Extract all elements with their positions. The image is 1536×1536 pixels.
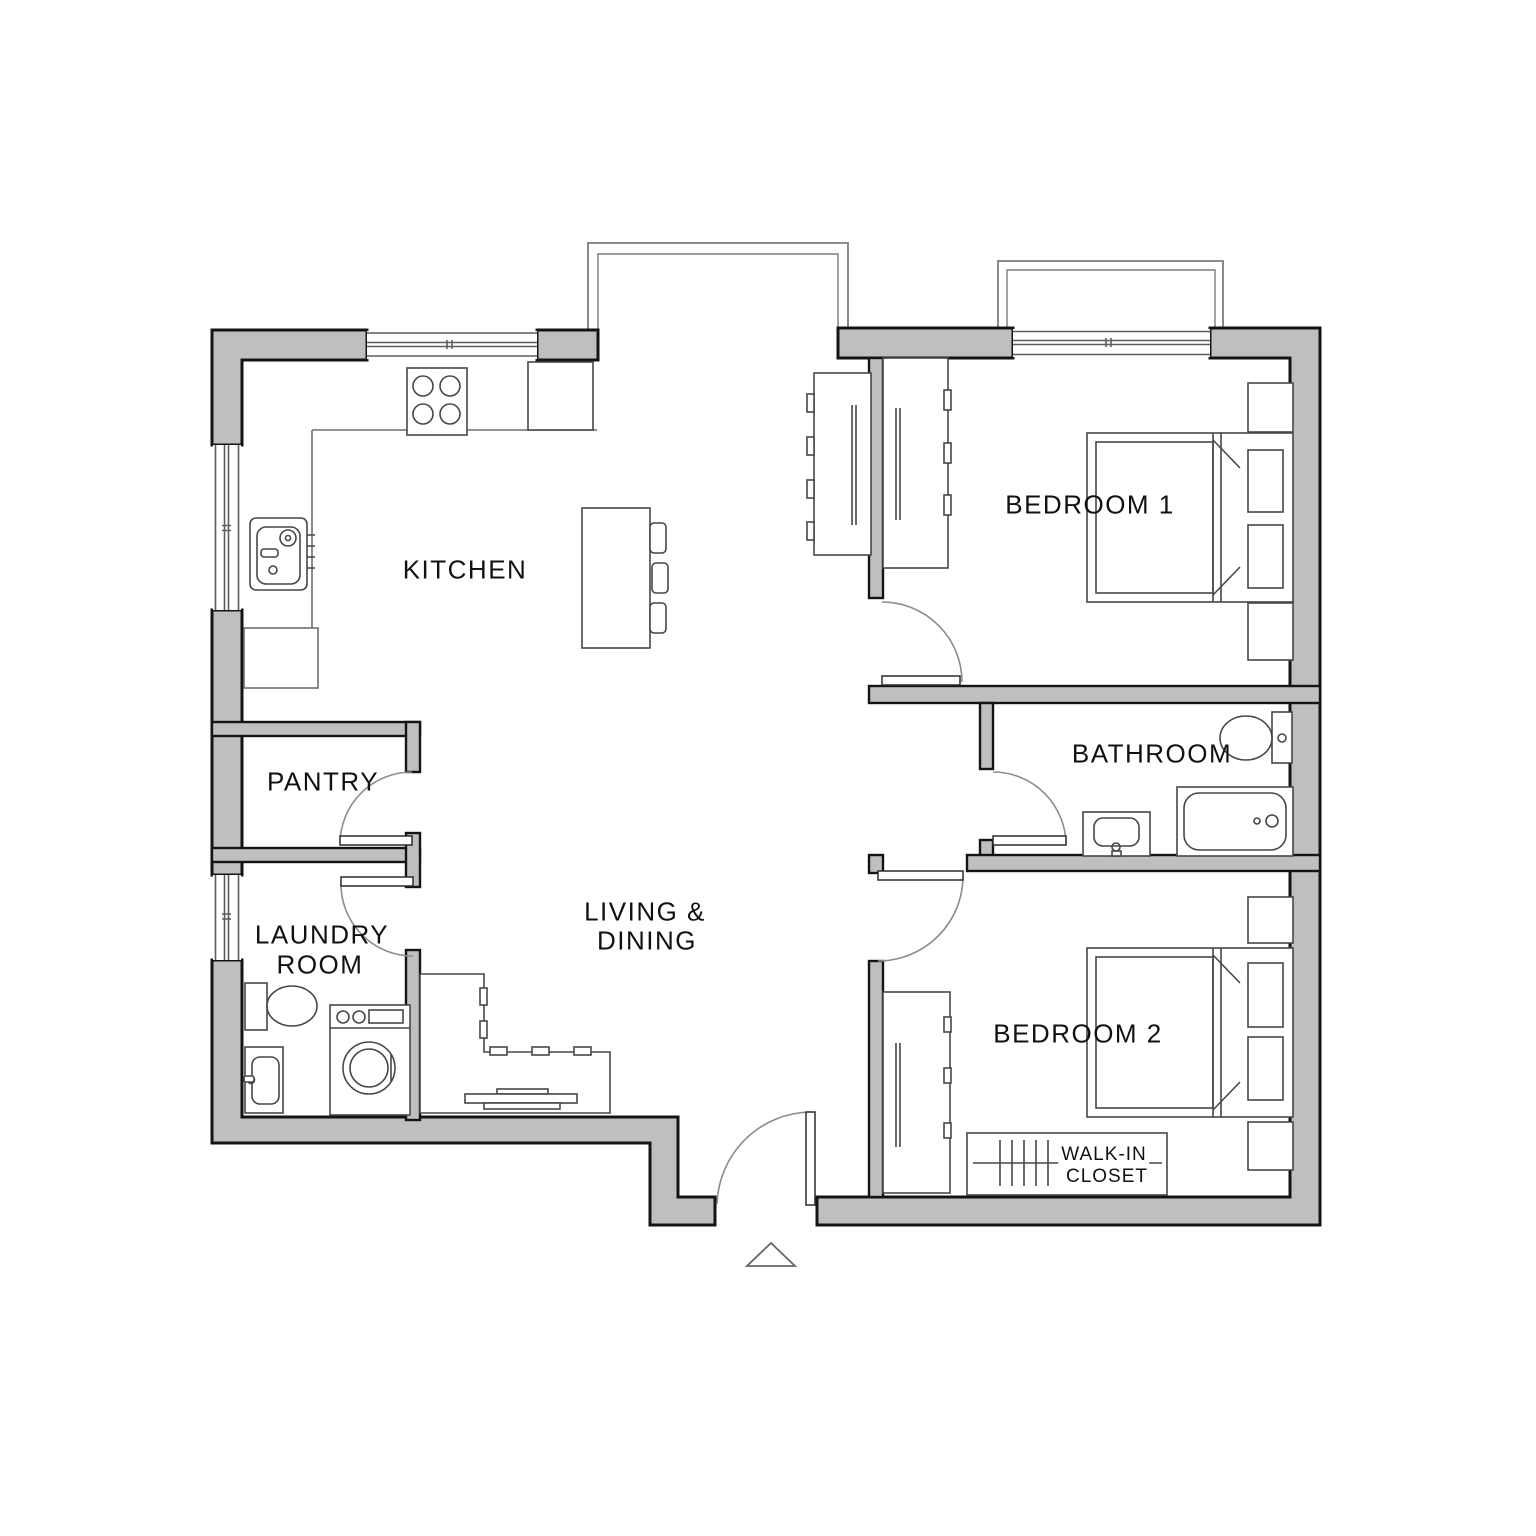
stool-icon [650, 523, 666, 553]
pillow-icon [1248, 1037, 1283, 1100]
door-swing-icon [882, 602, 962, 682]
window-laundry-left [213, 875, 241, 960]
wall-bedroom1-bathroom [869, 686, 1320, 703]
nightstand-icon [1248, 897, 1293, 943]
entry-triangle-icon [747, 1243, 795, 1266]
stool-icon [652, 563, 668, 593]
stool-icon [650, 603, 666, 633]
wall-bathroom-left-lower [980, 840, 993, 856]
wall-bathroom-left-upper [980, 703, 993, 769]
bathroom-door [993, 772, 1066, 845]
wardrobe-icon [807, 373, 871, 555]
wall-left-middle [212, 610, 242, 875]
floor-plan-drawing [0, 0, 1536, 1536]
door-swing-icon [341, 884, 413, 956]
walk-in-closet-area [967, 1133, 1167, 1195]
cabinet-icon [244, 628, 318, 688]
wall-bathroom-bedroom2 [967, 855, 1320, 871]
pillow-icon [1248, 450, 1283, 512]
window-bedroom1-top [1013, 329, 1210, 357]
wardrobe-icon [883, 992, 951, 1193]
wall-top-kitchen-right [537, 330, 598, 360]
nightstand-icon [1248, 1122, 1293, 1170]
bay-window-icon [998, 261, 1223, 328]
wall-top-left-corner [212, 330, 367, 445]
door-swing-icon [878, 876, 963, 961]
pantry-door [340, 772, 412, 845]
stove-icon [407, 368, 467, 435]
window-kitchen-left [213, 445, 241, 610]
washing-machine-icon [330, 1005, 410, 1115]
pillow-icon [1248, 525, 1283, 588]
kitchen-sink-icon [250, 518, 315, 590]
floor-plan: KITCHEN BEDROOM 1 BATHROOM PANTRY LAUNDR… [0, 0, 1536, 1536]
door-swing-icon [717, 1112, 810, 1204]
bedroom2-door [878, 871, 963, 961]
pillow-icon [1248, 963, 1283, 1027]
wardrobe-icon [883, 358, 951, 568]
door-swing-icon [993, 772, 1066, 845]
nightstand-icon [1248, 383, 1293, 432]
door-swing-icon [340, 772, 412, 843]
wall-pantry-bottom [212, 848, 420, 862]
nightstand-icon [1248, 603, 1293, 660]
laundry-sink-icon [244, 1047, 283, 1113]
bathtub-icon [1177, 787, 1293, 856]
wall-pantry-top [212, 722, 420, 736]
bathroom-sink-icon [1083, 812, 1150, 856]
wall-bedroom2-left [869, 961, 883, 1197]
toilet-icon [1220, 712, 1292, 763]
bed-icon [1087, 433, 1293, 602]
window-kitchen-top [367, 331, 537, 359]
bay-window-icon [588, 243, 848, 330]
entry-door [717, 1112, 815, 1205]
wall-top-bedroom1-left [838, 328, 1013, 358]
fridge-icon [528, 362, 593, 430]
island-icon [582, 508, 668, 648]
bedroom1-door [882, 602, 962, 685]
toilet-icon [245, 983, 317, 1030]
laundry-door [341, 877, 413, 956]
bed-icon [1087, 948, 1293, 1117]
wall-pantry-right-stub [406, 722, 420, 772]
